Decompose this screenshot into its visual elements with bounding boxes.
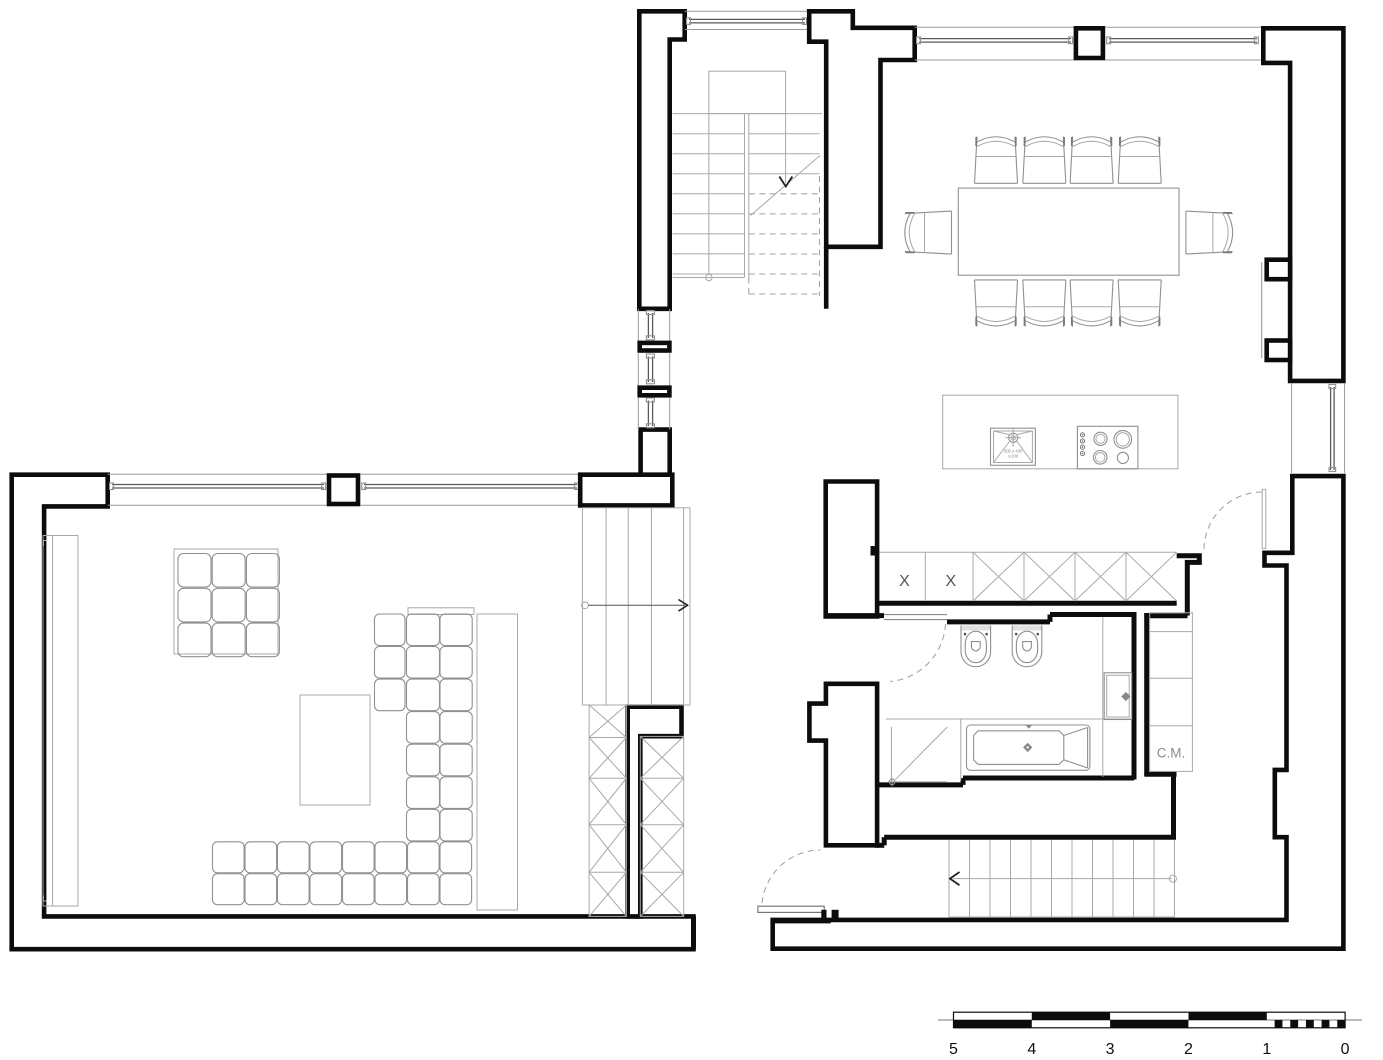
svg-text:X: X (899, 573, 910, 590)
svg-text:2: 2 (1184, 1041, 1193, 1058)
svg-text:v.100: v.100 (1008, 454, 1019, 459)
svg-text:0: 0 (1341, 1041, 1350, 1058)
svg-text:5: 5 (949, 1041, 958, 1058)
svg-text:X: X (945, 573, 956, 590)
svg-text:1: 1 (1262, 1041, 1271, 1058)
svg-text:3: 3 (1106, 1041, 1115, 1058)
svg-text:4: 4 (1027, 1041, 1036, 1058)
svg-text:C.M.: C.M. (1157, 746, 1186, 761)
